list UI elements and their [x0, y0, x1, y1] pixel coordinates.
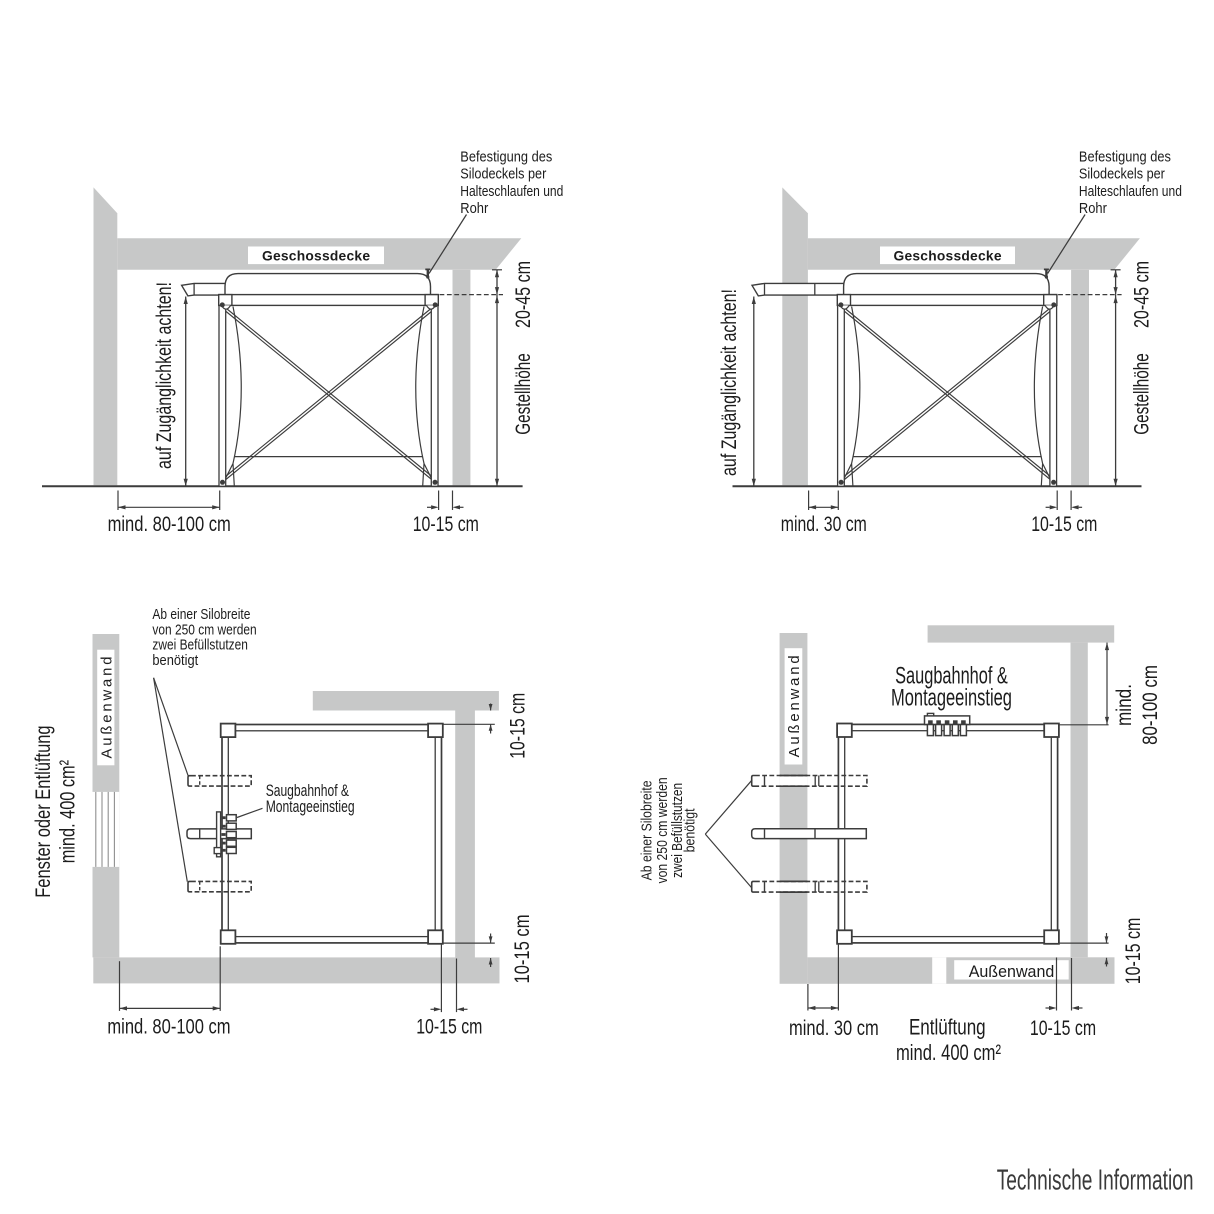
- svg-text:Silodeckels per: Silodeckels per: [460, 166, 546, 183]
- svg-text:Montageeinstieg: Montageeinstieg: [266, 797, 355, 816]
- svg-text:10-15 cm: 10-15 cm: [413, 512, 479, 536]
- svg-text:20-45 cm: 20-45 cm: [511, 261, 535, 328]
- svg-text:10-15 cm: 10-15 cm: [416, 1015, 482, 1039]
- svg-text:Befestigung des: Befestigung des: [1079, 148, 1171, 165]
- svg-text:10-15 cm: 10-15 cm: [505, 693, 529, 759]
- svg-text:mind. 400 cm²: mind. 400 cm²: [55, 760, 79, 863]
- svg-text:Außenwand: Außenwand: [787, 655, 803, 757]
- svg-text:auf Zugänglichkeit achten!: auf Zugänglichkeit achten!: [717, 289, 741, 476]
- svg-text:von 250 cm werden: von 250 cm werden: [655, 777, 671, 883]
- svg-text:Fenster oder Entlüftung: Fenster oder Entlüftung: [31, 725, 55, 897]
- svg-text:benötigt: benötigt: [152, 653, 198, 669]
- svg-text:20-45 cm: 20-45 cm: [1130, 261, 1154, 328]
- svg-text:Technische Information: Technische Information: [997, 1165, 1194, 1197]
- svg-text:80-100 cm: 80-100 cm: [1138, 665, 1162, 745]
- svg-text:Gestellhöhe: Gestellhöhe: [1130, 353, 1154, 435]
- svg-text:mind. 80-100 cm: mind. 80-100 cm: [108, 512, 231, 536]
- svg-text:Ab einer Silobreite: Ab einer Silobreite: [152, 607, 250, 623]
- svg-text:Befestigung des: Befestigung des: [460, 148, 552, 165]
- svg-text:10-15 cm: 10-15 cm: [1121, 918, 1145, 985]
- svg-text:benötigt: benötigt: [682, 808, 698, 852]
- svg-text:mind.: mind.: [1112, 684, 1136, 726]
- svg-text:Geschossdecke: Geschossdecke: [894, 248, 1002, 263]
- svg-text:Ab einer Silobreite: Ab einer Silobreite: [640, 780, 656, 880]
- svg-text:mind. 30 cm: mind. 30 cm: [781, 512, 867, 536]
- svg-text:von 250 cm werden: von 250 cm werden: [152, 622, 256, 638]
- svg-text:Rohr: Rohr: [460, 200, 488, 217]
- svg-text:Gestellhöhe: Gestellhöhe: [511, 353, 535, 435]
- svg-text:mind. 400 cm²: mind. 400 cm²: [896, 1040, 1001, 1065]
- svg-text:zwei Befüllstutzen: zwei Befüllstutzen: [152, 638, 248, 654]
- svg-text:10-15 cm: 10-15 cm: [1030, 1016, 1096, 1040]
- svg-text:Außenwand: Außenwand: [99, 657, 115, 759]
- svg-text:10-15 cm: 10-15 cm: [510, 915, 534, 984]
- svg-text:Rohr: Rohr: [1079, 200, 1107, 217]
- svg-text:10-15 cm: 10-15 cm: [1031, 512, 1097, 536]
- svg-text:Außenwand: Außenwand: [969, 963, 1055, 981]
- svg-text:Entlüftung: Entlüftung: [909, 1015, 986, 1040]
- svg-text:Silodeckels per: Silodeckels per: [1079, 166, 1165, 183]
- svg-text:Halteschlaufen und: Halteschlaufen und: [1079, 183, 1182, 200]
- svg-text:Halteschlaufen und: Halteschlaufen und: [460, 183, 563, 200]
- svg-text:mind. 80-100 cm: mind. 80-100 cm: [107, 1015, 230, 1039]
- svg-text:mind. 30 cm: mind. 30 cm: [789, 1016, 879, 1040]
- svg-text:auf Zugänglichkeit achten!: auf Zugänglichkeit achten!: [152, 282, 176, 469]
- svg-text:Montageeinstieg: Montageeinstieg: [891, 685, 1012, 712]
- svg-text:Geschossdecke: Geschossdecke: [262, 248, 370, 263]
